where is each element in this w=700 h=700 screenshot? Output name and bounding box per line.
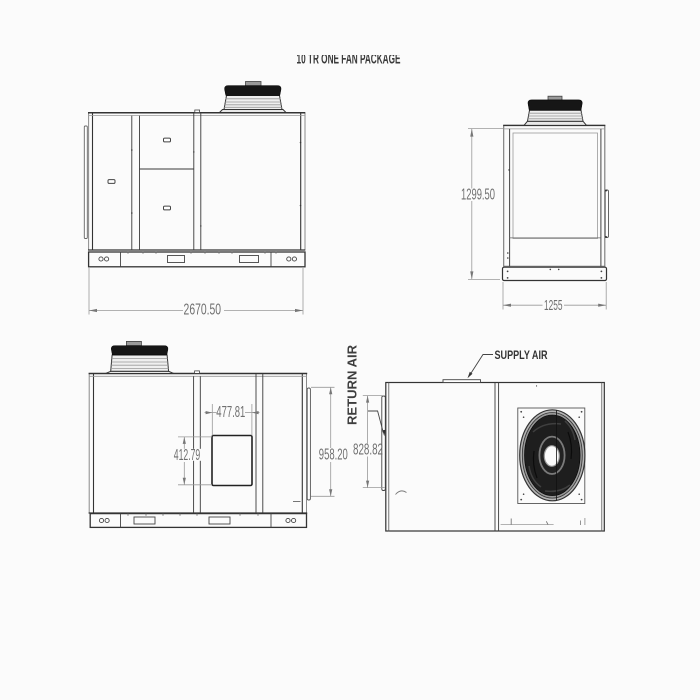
svg-text:1299.50: 1299.50 (461, 187, 495, 204)
svg-text:828.82: 828.82 (353, 441, 383, 458)
svg-text:1255: 1255 (544, 297, 563, 314)
svg-text:412.79: 412.79 (174, 447, 201, 464)
svg-text:SUPPLY AIR: SUPPLY AIR (495, 348, 548, 362)
svg-text:958.20: 958.20 (319, 447, 348, 464)
svg-text:RETURN AIR: RETURN AIR (344, 344, 359, 425)
svg-text:477.81: 477.81 (216, 404, 245, 421)
svg-text:2670.50: 2670.50 (184, 301, 222, 318)
